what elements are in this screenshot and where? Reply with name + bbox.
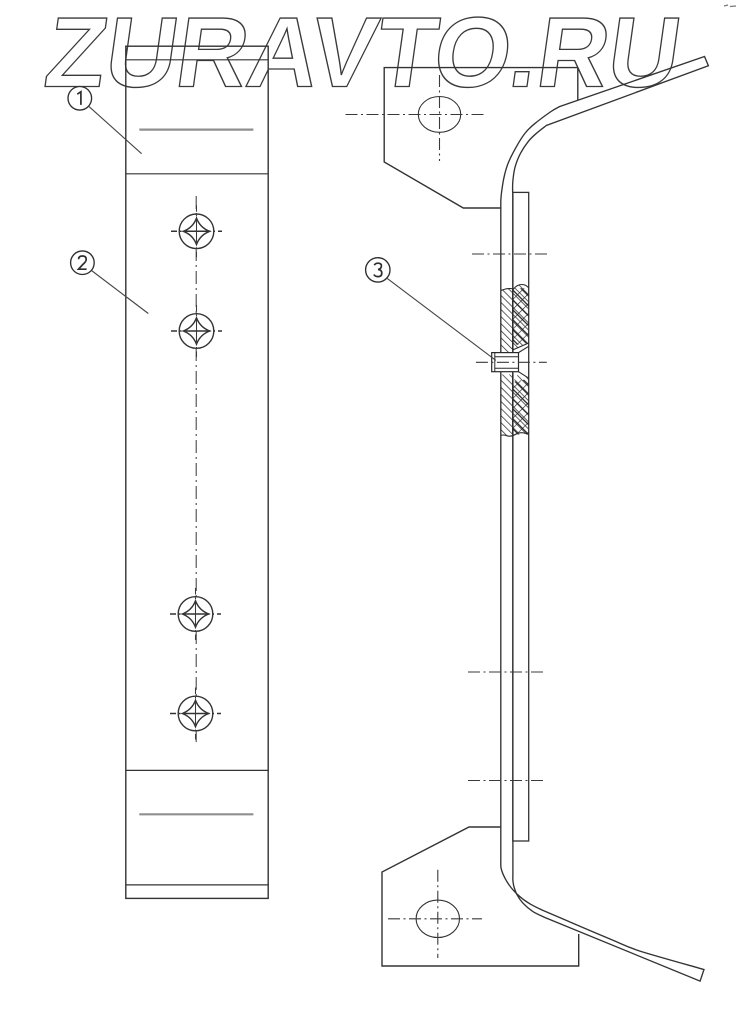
svg-text:ZURAVTO.RU: ZURAVTO.RU (39, 0, 688, 108)
